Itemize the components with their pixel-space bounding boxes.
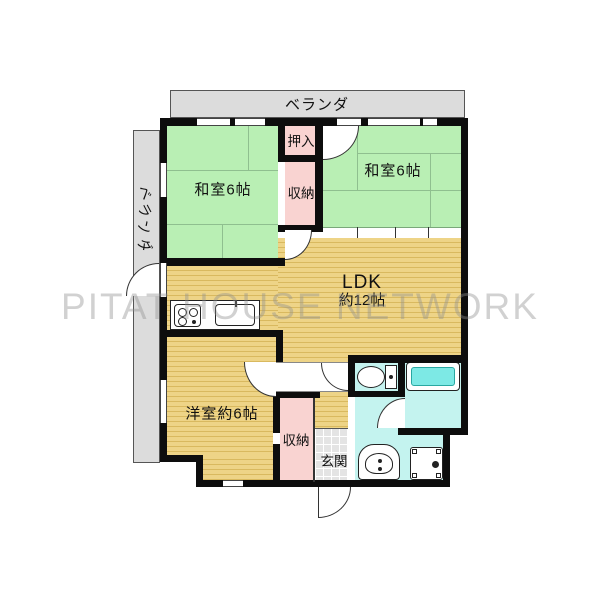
entrance-door-arc xyxy=(318,487,351,518)
tatami-line xyxy=(167,170,278,171)
toilet-dot xyxy=(389,375,393,379)
washbasin-dot xyxy=(378,467,382,471)
floor-plan: ベランダ ベランダ xyxy=(0,0,600,600)
tatami-line xyxy=(222,224,223,258)
washer-corner xyxy=(412,449,417,454)
wall xyxy=(160,330,283,337)
window xyxy=(423,118,437,126)
wall xyxy=(315,126,323,232)
wall xyxy=(278,155,323,162)
window xyxy=(368,118,420,126)
bathtub-water xyxy=(411,367,455,386)
genkan-step-line xyxy=(315,428,348,429)
tatami-line xyxy=(357,153,461,154)
room-label-washitsu-right: 和室6帖 xyxy=(364,160,421,181)
room-label-genkan: 玄関 xyxy=(321,450,348,470)
tatami-line xyxy=(248,126,249,170)
washer-corner xyxy=(412,473,417,478)
wall xyxy=(160,258,285,266)
sliding-door-tick xyxy=(428,227,429,238)
watermark-text: PITAT HOUSE NETWORK xyxy=(0,286,600,328)
wall xyxy=(443,428,450,487)
toilet-icon xyxy=(357,364,398,390)
wall xyxy=(348,391,405,397)
room-label-closet-upper: 収納 xyxy=(288,182,315,202)
window xyxy=(160,163,167,197)
room-youshitsu-lower xyxy=(202,455,278,482)
washer-corner xyxy=(436,449,441,454)
room-label-closet-lower: 収納 xyxy=(283,429,310,449)
tatami-line xyxy=(430,153,431,227)
room-label-youshitsu: 洋室約6帖 xyxy=(185,403,258,424)
balcony-top-label: ベランダ xyxy=(285,94,349,115)
wall xyxy=(348,355,468,363)
room-youshitsu xyxy=(167,337,278,455)
window xyxy=(160,380,167,423)
room-label-oshiire: 押入 xyxy=(288,130,315,150)
window xyxy=(235,118,265,126)
wall xyxy=(276,330,283,362)
washer-corner xyxy=(436,473,441,478)
washbasin-icon xyxy=(358,444,400,480)
window xyxy=(337,118,361,126)
washing-machine-icon xyxy=(410,447,443,480)
balcony-left-label: ベランダ xyxy=(137,184,151,254)
window xyxy=(197,118,230,126)
sliding-door-tick xyxy=(395,227,396,238)
toilet-bowl xyxy=(357,366,385,388)
window xyxy=(223,480,243,487)
sliding-door-track xyxy=(323,227,461,238)
closet-door-gap xyxy=(273,433,280,444)
washbasin-dot xyxy=(378,459,382,463)
room-label-washitsu-left: 和室6帖 xyxy=(194,179,251,200)
tatami-line xyxy=(323,190,461,191)
washer-dot xyxy=(432,461,439,468)
sliding-door-tick xyxy=(357,227,358,238)
bathtub-icon xyxy=(406,362,460,391)
wall xyxy=(461,118,468,435)
thin-wall xyxy=(313,398,315,482)
wall xyxy=(398,428,468,435)
